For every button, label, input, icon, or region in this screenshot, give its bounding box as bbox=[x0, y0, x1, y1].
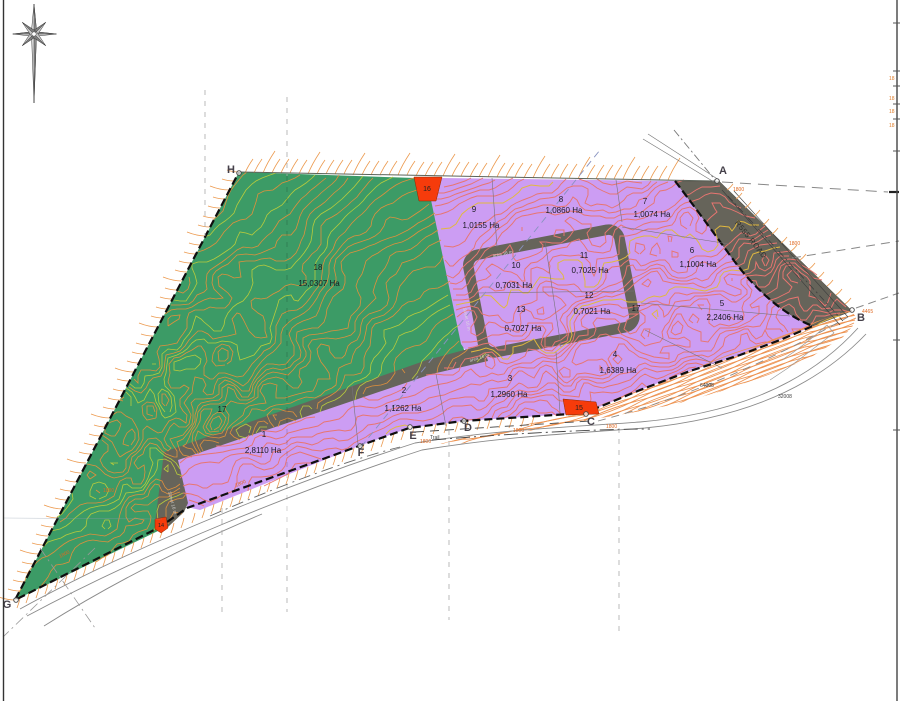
svg-text:17: 17 bbox=[218, 405, 227, 414]
svg-text:1800: 1800 bbox=[103, 488, 114, 494]
svg-text:8: 8 bbox=[559, 195, 564, 204]
svg-text:2,2406 Ha: 2,2406 Ha bbox=[707, 313, 744, 322]
svg-text:15: 15 bbox=[575, 405, 583, 412]
svg-text:1,0074 Ha: 1,0074 Ha bbox=[634, 210, 671, 219]
svg-text:11: 11 bbox=[580, 251, 589, 260]
svg-text:18: 18 bbox=[889, 76, 895, 82]
svg-text:7: 7 bbox=[643, 197, 648, 206]
svg-text:13: 13 bbox=[517, 305, 526, 314]
svg-text:16: 16 bbox=[423, 186, 431, 193]
svg-text:5: 5 bbox=[720, 299, 725, 308]
svg-text:C: C bbox=[587, 416, 595, 428]
svg-text:Trail: Trail bbox=[430, 435, 440, 441]
svg-text:2: 2 bbox=[402, 386, 407, 395]
svg-text:4: 4 bbox=[613, 350, 618, 359]
svg-text:6: 6 bbox=[690, 246, 695, 255]
svg-text:18: 18 bbox=[889, 96, 895, 102]
svg-text:18: 18 bbox=[889, 109, 895, 115]
svg-text:A: A bbox=[719, 165, 727, 177]
svg-text:F: F bbox=[358, 447, 365, 459]
svg-text:1,1004 Ha: 1,1004 Ha bbox=[680, 260, 717, 269]
svg-text:1800: 1800 bbox=[789, 241, 800, 247]
svg-text:2,8110 Ha: 2,8110 Ha bbox=[245, 446, 282, 455]
svg-text:32008: 32008 bbox=[778, 394, 792, 400]
svg-text:10: 10 bbox=[512, 261, 521, 270]
svg-text:0,7025 Ha: 0,7025 Ha bbox=[572, 266, 609, 275]
svg-text:64008: 64008 bbox=[700, 383, 714, 389]
svg-text:9: 9 bbox=[472, 205, 477, 214]
svg-text:1800: 1800 bbox=[513, 428, 524, 434]
svg-text:12: 12 bbox=[585, 291, 594, 300]
svg-text:14: 14 bbox=[158, 523, 164, 529]
svg-text:H: H bbox=[227, 164, 235, 176]
svg-text:3: 3 bbox=[508, 374, 513, 383]
svg-text:1800: 1800 bbox=[733, 187, 744, 193]
svg-text:0,7027 Ha: 0,7027 Ha bbox=[505, 324, 542, 333]
svg-text:18: 18 bbox=[314, 263, 323, 272]
svg-text:1,2960 Ha: 1,2960 Ha bbox=[491, 390, 528, 399]
svg-text:15,0307 Ha: 15,0307 Ha bbox=[298, 279, 340, 288]
svg-text:E: E bbox=[409, 430, 416, 442]
svg-text:4465: 4465 bbox=[862, 309, 873, 315]
svg-text:1,0155 Ha: 1,0155 Ha bbox=[463, 221, 500, 230]
svg-text:0,7031 Ha: 0,7031 Ha bbox=[496, 281, 533, 290]
svg-text:18: 18 bbox=[889, 123, 895, 129]
svg-text:1,1262 Ha: 1,1262 Ha bbox=[385, 404, 422, 413]
svg-text:0,7021 Ha: 0,7021 Ha bbox=[574, 307, 611, 316]
svg-text:D: D bbox=[464, 422, 472, 434]
svg-text:1,6389 Ha: 1,6389 Ha bbox=[600, 366, 637, 375]
svg-text:1: 1 bbox=[262, 430, 267, 439]
svg-text:17: 17 bbox=[632, 304, 641, 313]
svg-text:1800: 1800 bbox=[606, 424, 617, 430]
svg-text:1,0860 Ha: 1,0860 Ha bbox=[546, 206, 583, 215]
